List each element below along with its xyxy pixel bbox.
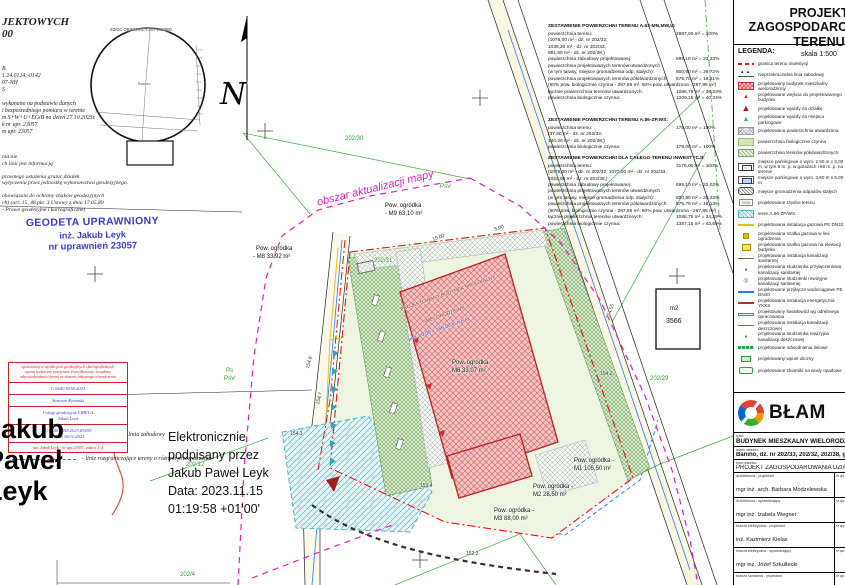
legend-item: projektowane wjazdy na działkę (738, 103, 845, 114)
area-table-total: ZESTAWIENIE POWIERZCHNI DLA CAŁEGO TEREN… (548, 156, 735, 228)
person-name: mgr inż. Józef Szkultecki (736, 562, 798, 568)
map-label: Pow. ogródka - (533, 484, 573, 490)
area-row-value: 699,10 m² = 22,02% (676, 183, 719, 189)
map-label: 202/30 (345, 136, 363, 142)
legend-item-label: miejsce parkingowe o wym. 2,50 m x 5,00 … (758, 159, 845, 175)
area-table-a86: ZESTAWIENIE POWIERZCHNI TERENU A.86-ZP,W… (548, 118, 735, 151)
person-name: inż. Kazimierz Kielas (736, 537, 788, 543)
area-row-label: powierzchnia biologicznie czynna: (548, 145, 676, 151)
digital-signature-detail-line: podpisany przez (168, 446, 269, 464)
license-col-label: nr upr. (836, 474, 845, 478)
legend-symbol-icon (738, 93, 754, 101)
map-label: 202/4 (180, 572, 195, 578)
map-label: PsV (440, 184, 451, 190)
area-row-value: 699,10 m² = 23,33% (676, 57, 719, 63)
map-label: Pow. ogródka (452, 360, 488, 366)
legend-item-label: teren A.86-ZP/WS (758, 211, 845, 216)
titleblock-person-row: branża sanitarna - projektant mgr inż. J… (734, 573, 845, 585)
legend-item: projektowane rzędne terenu (738, 197, 845, 208)
legal-note-line: ch linii jest informacją (2, 161, 128, 168)
legend-item-label: granica terenu inwestycji (758, 61, 845, 66)
titleblock-person-row: Architektura - projektant mgr inż. arch.… (734, 473, 845, 498)
legend-item: projektowane odwodnienia liniowe (738, 342, 845, 353)
titleblock-value: Banino, dz. nr 202/33, 202/32, 202/38, g… (736, 452, 845, 458)
legend-symbol-icon (738, 288, 754, 296)
map-source-note-line: 1.24.0124;-0142 (2, 73, 96, 80)
map-label: 202/29 (650, 376, 668, 382)
legend-item: powierzchnia biologicznie czynna (738, 136, 845, 147)
area-row-label: powierzchnia biologicznie czynna: (548, 222, 676, 228)
legal-note-line: - Prawo geodezyjne i kartograficzne) (2, 207, 128, 214)
legend-item-label: miejsce parkingowe o wym. 3,60 m x 5,00 … (758, 175, 845, 186)
map-source-note-line: i bezpośredniego pomiaru w terenie (2, 108, 96, 115)
area-table-row: powierzchnia biologicznie czynna: 178,00… (548, 145, 735, 151)
map-source-notes: B1.24.0124;-014207-NHSwykonano na podsta… (2, 66, 96, 136)
map-source-note-line: m upr. 23057 (2, 129, 96, 136)
legend-item-label: projektowana szafka gazowa na elewacji b… (758, 242, 845, 253)
titleblock-person-row: branża elektryczna - sprawdzający mgr in… (734, 548, 845, 573)
legal-notes: nia niech linii jest informacjąprawnego … (2, 154, 128, 213)
legend-item: projektowana studzienka przyłączeniowa k… (738, 264, 845, 275)
titleblock-value: PROJEKT ZAGOSPODAROWANIA DZIAŁKI (736, 465, 845, 471)
legend-item-label: projektowane rzędne terenu (758, 200, 845, 205)
area-table-title: ZESTAWIENIE POWIERZCHNI TERENU A.86-ZP,W… (548, 118, 735, 125)
titleblock-project-title: tytuł: BUDYNEK MIESZKALNY WIELORODZINNY (734, 433, 845, 447)
legend-item-label: projektowany budynek mieszkalny wielorod… (758, 81, 845, 92)
legend-symbol-icon (738, 176, 754, 184)
right-panel: PROJEKT ZAGOSPODAROWANIA TERENU skala 1:… (733, 0, 845, 585)
legend-item: projektowana instalacja gazowa PE DN32 (738, 219, 845, 230)
legend-item: projektowane zbiorniki na wody opadowe (738, 365, 845, 376)
legend-item: nieprzekraczalna linia zabudowy (738, 69, 845, 80)
map-label: - M8 33,92 m² (253, 254, 290, 260)
map-label: m2 (670, 306, 678, 312)
legend-item: projektowana instalacja kanalizacji sani… (738, 253, 845, 264)
legend-item-label: projektowana szafka gazowa w linii ogrod… (758, 231, 845, 242)
titleblock-drawing-title: tytuł rysunku: PROJEKT ZAGOSPODAROWANIA … (734, 460, 845, 473)
legend-item: projektowana szafka gazowa w linii ogrod… (738, 230, 845, 241)
legend-item-label: projektowana instalacja gazowa PE DN32 (758, 222, 845, 227)
legend-item: projektowana instalacja energetyczna YKX… (738, 298, 845, 309)
legend: LEGENDA: granica terenu inwestycji niepr… (738, 48, 845, 376)
legend-item: projektowana studzienka rewizyjna kanali… (738, 331, 845, 342)
legend-item-label: miejsce gromadzenia odpadów stałych (758, 189, 845, 194)
legend-symbol-icon (738, 127, 754, 135)
digital-signature-name-line: Jakub (0, 414, 64, 445)
authority: Starosta Kartuski (9, 395, 127, 407)
map-sheet-title-line: 00 (2, 28, 69, 40)
sheet-title-line2: TERENU (734, 35, 845, 49)
legend-symbol-icon (738, 138, 754, 146)
map-label: 154.2 (600, 372, 613, 377)
legal-note-line: ch) (art. 15, 48 pkt. 3 Ustawy z dnia 17… (2, 200, 128, 207)
legend-item: projektowana szafka gazowa na elewacji b… (738, 242, 845, 253)
area-row-value: 178,00 m² = 100% (676, 145, 715, 151)
license-col-label: nr upr. (836, 574, 845, 578)
map-label: Pow. ogródka (256, 246, 292, 252)
legend-item-label: powierzchnia biologicznie czynna (758, 139, 845, 144)
legend-item: projektowany budynek mieszkalny wielorod… (738, 80, 845, 91)
map-label: N (220, 80, 246, 110)
legend-symbol-icon (738, 187, 754, 195)
legend-item: projektowany światłowód wg odrębnego opr… (738, 309, 845, 320)
legend-item-label: powierzchnia terenów półutwardzonych (758, 150, 845, 155)
legend-symbol-icon (738, 232, 754, 240)
person-role: Architektura - projektant (736, 474, 845, 478)
digital-signature-detail-line: Data: 2023.11.15 (168, 482, 269, 500)
map-label: 3566 (666, 318, 682, 325)
legend-symbol-icon (738, 266, 754, 274)
map-label: Banino (138, 82, 150, 86)
stamp-title: GEODETA UPRAWNIONY (26, 215, 159, 231)
sheet-title-box: PROJEKT ZAGOSPODAROWANIA TERENU skala 1:… (734, 0, 845, 45)
stamp-license: nr uprawnień 23057 (26, 240, 159, 255)
area-row-label: powierzchnia biologicznie czynna: (548, 96, 676, 102)
verification-statement-line: odpowiedzialności karnej za złożenie fał… (10, 375, 126, 380)
person-name: mgr inż. Izabela Wegner (736, 512, 797, 518)
license-col-label: nr upr. (836, 549, 845, 553)
digital-signature-name: JakubPawełLeyk (0, 414, 64, 507)
legend-item-label: projektowana studzienka rewizyjna kanali… (758, 331, 845, 342)
titleblock-address: adres obiektu: Banino, dz. nr 202/33, 20… (734, 447, 845, 460)
legal-note-line: prawnego ustalenia granic działek. (2, 174, 128, 181)
legend-symbol-icon (738, 355, 754, 363)
legend-item: teren A.86-ZP/WS (738, 208, 845, 219)
legend-symbol-icon (738, 322, 754, 330)
map-label: Pow. ogródka - (574, 458, 614, 464)
legend-item-label: projektowany światłowód wg odrębnego opr… (758, 309, 845, 320)
area-table-title: ZESTAWIENIE POWIERZCHNI TERENU A.63-MN,M… (548, 24, 735, 31)
area-row-value: 1209,15 m² = 40,34% (676, 96, 722, 102)
legend-item: miejsce parkingowe o wym. 3,60 m x 5,00 … (738, 175, 845, 186)
digital-signature-name-line: Leyk (0, 476, 64, 507)
titleblock-person-row: Architektura - sprawdzający mgr inż. Iza… (734, 498, 845, 523)
blam-logo-text: BŁAM (769, 402, 826, 424)
legend-symbol-icon (738, 82, 754, 90)
map-label: 152.3 (466, 552, 479, 557)
digital-signature-detail-line: Elektronicznie (168, 428, 269, 446)
map-label: SZKIC ORIENTACYJNY 1:10000 (110, 28, 172, 32)
legend-symbol-icon (738, 60, 754, 68)
legend-item: projektowana powierzchnia utwardzona (738, 125, 845, 136)
license-col-label: nr upr. (836, 499, 845, 503)
legal-note-line: wytyczeniu przez jednostkę wykonawstwa g… (2, 180, 128, 187)
map-source-note-line: S (2, 87, 96, 94)
legend-item-label: projektowana instalacja kanalizacji desz… (758, 320, 845, 331)
map-source-note-line: B (2, 66, 96, 73)
map-label: Pow. ogródka - (494, 508, 534, 514)
map-label: M1 105,50 m² (574, 466, 611, 472)
legend-item-label: projektowana instalacja kanalizacji sani… (758, 253, 845, 264)
legend-symbol-icon (738, 221, 754, 229)
area-row-value: 2997,00 m² = 100% (676, 32, 718, 38)
legend-symbol-icon (738, 243, 754, 251)
map-source-note-line: k nr upr. 23057 (2, 122, 96, 129)
area-row-value: 1387,15 m² = 43,69% (676, 222, 722, 228)
map-label: 154.3 (290, 432, 303, 437)
digital-signature-detail-line: 01:19:58 +01'00' (168, 500, 269, 518)
legal-note-line: nia nie (2, 154, 128, 161)
legend-symbol-icon (738, 210, 754, 218)
area-table-a63: ZESTAWIENIE POWIERZCHNI TERENU A.63-MN,M… (548, 24, 735, 103)
area-table-row: powierzchnia biologicznie czynna: 1387,1… (548, 222, 735, 228)
map-label: M6 33,07 m² (452, 368, 486, 374)
map-label: Ps (226, 368, 233, 374)
legend-symbol-icon (738, 149, 754, 157)
company-logo-box: BŁAM (734, 392, 845, 432)
legend-symbol-icon (738, 254, 754, 262)
titleblock-value: BUDYNEK MIESZKALNY WIELORODZINNY (736, 438, 845, 445)
legend-symbol-icon (738, 163, 754, 171)
digital-signature-detail-line: Jakub Paweł Leyk (168, 464, 269, 482)
legend-item: miejsce parkingowe o wym. 2,50 m x 5,00 … (738, 159, 845, 175)
person-role: branża sanitarna - projektant (736, 574, 845, 578)
legend-item-label: projektowane odwodnienia liniowe (758, 345, 845, 350)
blam-logo-icon (738, 400, 764, 426)
legend-symbol-icon (738, 199, 754, 207)
map-label: Pow. ogródka (385, 203, 421, 209)
sheet-title-line1: PROJEKT ZAGOSPODAROWANIA (734, 6, 845, 35)
map-source-note-line: wykonano na podstawie danych (2, 101, 96, 108)
legend-item: miejsce gromadzenia odpadów stałych (738, 186, 845, 197)
legend-item-label: projektowany wpust uliczny (758, 356, 845, 361)
legend-symbol-icon (738, 104, 754, 112)
case-number: G.6640.8558.2023 (9, 383, 127, 395)
person-role: Architektura - sprawdzający (736, 499, 845, 503)
person-role: branża elektryczna - projektant (736, 524, 845, 528)
legend-symbol-icon (738, 277, 754, 285)
digital-signature-name-line: Paweł (0, 445, 64, 476)
legend-symbol-icon (738, 116, 754, 124)
map-label: PsV (224, 376, 235, 382)
legal-note-line: obowiązani do ochrony znaków geodezyjnyc… (2, 193, 128, 200)
area-table-row: powierzchnia biologicznie czynna: 1209,1… (548, 96, 735, 102)
legend-item-label: projektowane wjazdy na miejsca parkingow… (758, 114, 845, 125)
verification-statement: opracowany w wyniku prac geodezyjnych i … (9, 363, 127, 383)
legend-item-label: projektowana instalacja energetyczna YKX… (758, 298, 845, 309)
legend-symbol-icon (738, 310, 754, 318)
legend-item: granica terenu inwestycji (738, 58, 845, 69)
legend-symbol-icon (738, 366, 754, 374)
person-role: branża elektryczna - sprawdzający (736, 549, 845, 553)
legend-item-label: projektowane zbiorniki na wody opadowe (758, 368, 845, 373)
legend-item-label: projektowane wejścia do projektowanego b… (758, 92, 845, 103)
digital-signature-details: Elektroniczniepodpisany przezJakub Paweł… (168, 428, 269, 518)
legend-item-label: projektowane przyłącze wodociągowe PE DN… (758, 287, 845, 298)
map-source-note-line: m S+W+U+EGiB na dzień 27.10.2023r. (2, 115, 96, 122)
legend-item: projektowane przyłącze wodociągowe PE DN… (738, 286, 845, 297)
legend-item-label: nieprzekraczalna linia zabudowy (758, 72, 845, 77)
legend-item-label: projektowane wjazdy na działkę (758, 106, 845, 111)
legend-item-label: projektowane studzienki rewizyjne kanali… (758, 276, 845, 287)
legend-item: projektowany wpust uliczny (738, 354, 845, 365)
surveyor-stamp: GEODETA UPRAWNIONY inż. Jakub Leyk nr up… (26, 215, 160, 255)
license-col-label: nr upr. (836, 524, 845, 528)
legend-item: projektowane wejścia do projektowanego b… (738, 92, 845, 103)
legend-item: projektowana instalacja kanalizacji desz… (738, 320, 845, 331)
legend-title: LEGENDA: (738, 48, 845, 55)
legend-item: projektowane wjazdy na miejsca parkingow… (738, 114, 845, 125)
legend-item: powierzchnia terenów półutwardzonych (738, 148, 845, 159)
legend-symbol-icon (738, 333, 754, 341)
titleblock: tytuł: BUDYNEK MIESZKALNY WIELORODZINNY … (734, 432, 845, 585)
map-label: 153.4 (420, 484, 433, 489)
titleblock-person-row: branża elektryczna - projektant inż. Kaz… (734, 523, 845, 548)
map-source-note-line: 07-NH (2, 80, 96, 87)
legend-item-label: projektowana studzienka przyłączeniowa k… (758, 264, 845, 275)
map-sheet-title-clipped: JEKTOWYCH00 (2, 16, 69, 40)
map-label: 202/31 (374, 258, 392, 264)
legend-item-label: projektowana powierzchnia utwardzona (758, 128, 845, 133)
area-row-value: 3175,00 m² = 100% (676, 164, 718, 170)
map-label: M2 28,50 m² (533, 492, 567, 498)
legend-symbol-icon (738, 344, 754, 352)
map-label: M3 88,00 m² (494, 516, 528, 522)
area-row-value: 178,00 m² = 100% (676, 126, 715, 132)
legend-symbol-icon (738, 71, 754, 79)
legend-symbol-icon (738, 299, 754, 307)
legend-item: projektowane studzienki rewizyjne kanali… (738, 275, 845, 286)
map-label: - M9 63,10 m² (385, 211, 422, 217)
area-table-title: ZESTAWIENIE POWIERZCHNI DLA CAŁEGO TEREN… (548, 156, 735, 163)
site-plan-sheet: SZKIC ORIENTACYJNY 1:10000 Banino N obsz… (0, 0, 845, 585)
map-sheet-title-line: JEKTOWYCH (2, 16, 69, 28)
person-name: mgr inż. arch. Barbara Modzelewska (736, 487, 827, 493)
